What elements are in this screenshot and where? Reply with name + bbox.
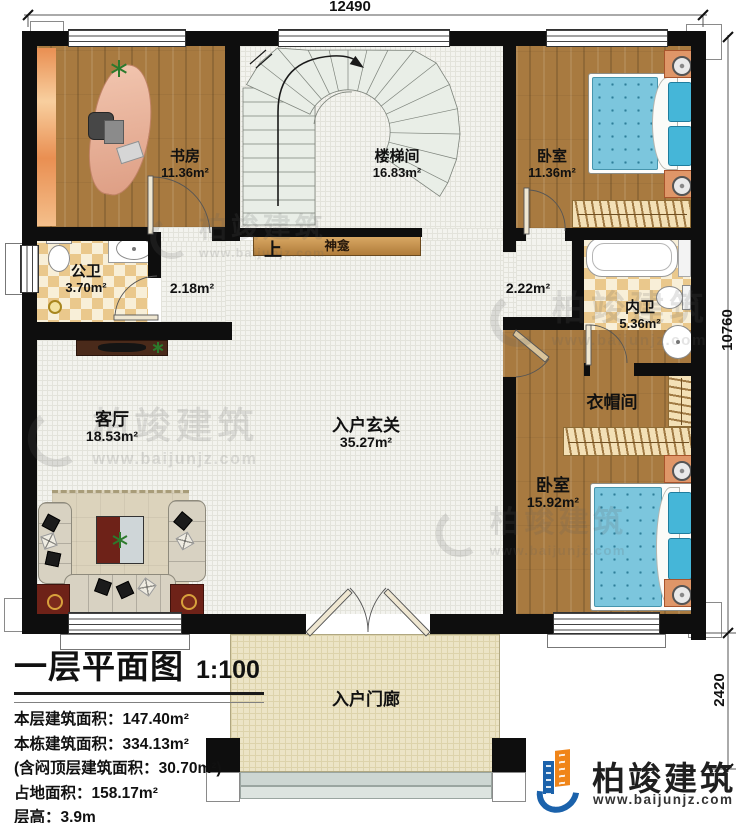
desk-plant [110, 60, 127, 77]
info-line: 层高：3.9m [14, 806, 274, 823]
window [546, 29, 668, 47]
pillow [668, 538, 692, 580]
room-label-foyer: 入户玄关 35.27m² [322, 416, 410, 451]
info-line: 本层建筑面积：147.40m² [14, 708, 274, 733]
dimension-top: 12490 [285, 0, 415, 14]
window [553, 612, 660, 634]
room-label-living: 客厅 18.53m² [70, 410, 154, 445]
room-label-study: 书房 11.36m² [145, 149, 225, 180]
wall [430, 614, 553, 634]
wall [584, 363, 590, 376]
mattress [592, 77, 658, 170]
info-line: 本栋建筑面积：334.13m² [14, 733, 274, 758]
study-floor-light [37, 48, 56, 226]
wall [182, 614, 306, 634]
pillow [668, 492, 692, 534]
plan-title: 一层平面图 [14, 648, 184, 685]
window [278, 29, 450, 47]
dimension-right-upper: 10760 [720, 292, 736, 368]
room-label-public-bath: 公卫 3.70m² [46, 264, 126, 295]
pillow [668, 82, 692, 122]
throw-pillow [45, 551, 62, 568]
cabinet-plant [152, 342, 163, 353]
brand-url: www.baijunjz.com [593, 792, 734, 807]
wall [225, 46, 240, 232]
table-plant [112, 532, 128, 548]
porch-step [240, 772, 492, 786]
hall-right-floor [516, 240, 572, 317]
room-label-stairwell: 楼梯间 16.83m² [352, 149, 442, 180]
wall [22, 322, 232, 340]
shrine-label: 神龛 [324, 239, 349, 253]
mattress [594, 487, 662, 607]
wall [572, 228, 691, 240]
window-sill [547, 634, 666, 648]
bathtub [586, 237, 678, 277]
wall [503, 317, 573, 330]
dimension-right-lower: 2420 [712, 652, 728, 728]
brand-logo-icon [536, 748, 590, 814]
floor-drain [48, 300, 62, 314]
wall [186, 31, 278, 46]
tub-deck [678, 237, 691, 277]
stair-up-label: 上 [258, 240, 288, 260]
plan-scale: 1:100 [196, 656, 260, 684]
lamp [672, 585, 692, 605]
title-block: 一层平面图1:100 本层建筑面积：147.40m² 本栋建筑面积：334.13… [14, 640, 274, 823]
area-label-hall-right: 2.22m² [488, 281, 568, 297]
wall [660, 614, 706, 634]
room-label-porch: 入户门廊 [312, 690, 420, 709]
wall [148, 232, 161, 278]
area-label-hall-left: 2.18m² [152, 281, 232, 297]
side-table [36, 584, 70, 616]
toilet-tank [682, 285, 691, 310]
room-label-bedroom1: 卧室 11.36m² [512, 149, 592, 180]
window [20, 245, 39, 293]
tv [98, 343, 146, 352]
info-line: 占地面积：158.17m² [14, 782, 274, 807]
window [68, 612, 182, 634]
lamp [672, 176, 692, 196]
stairwell-floor [240, 46, 503, 228]
wall [212, 227, 240, 241]
room-label-cloakroom: 衣帽间 [570, 393, 654, 412]
title-rule [14, 692, 264, 703]
pillow [668, 126, 692, 166]
doorway-floor [503, 330, 516, 377]
wall [22, 31, 37, 248]
lamp [672, 56, 692, 76]
computer-monitor [104, 120, 124, 144]
floor-plan: 神龛 [0, 0, 750, 823]
logo-building-blue [543, 761, 554, 794]
wall [240, 228, 422, 237]
porch-column-base [492, 772, 526, 802]
wall [22, 614, 68, 634]
info-line: (含闷顶层建筑面积：30.70m²) [14, 757, 274, 782]
wall [516, 228, 526, 241]
wall [22, 293, 37, 624]
doorway-floor [526, 228, 565, 241]
room-label-ensuite-bath: 内卫 5.36m² [600, 300, 680, 331]
wall [572, 235, 584, 330]
lamp [672, 461, 692, 481]
wall [450, 31, 546, 46]
wall [634, 363, 691, 376]
wall [691, 31, 706, 640]
logo-building-orange [555, 749, 570, 787]
closet [563, 427, 694, 456]
porch-column [492, 738, 526, 772]
wall [37, 227, 148, 241]
stair-passage-floor [422, 228, 503, 240]
wardrobe [572, 200, 691, 228]
porch-step [240, 786, 492, 799]
room-label-bedroom2: 卧室 15.92m² [512, 476, 594, 511]
window [68, 29, 186, 47]
